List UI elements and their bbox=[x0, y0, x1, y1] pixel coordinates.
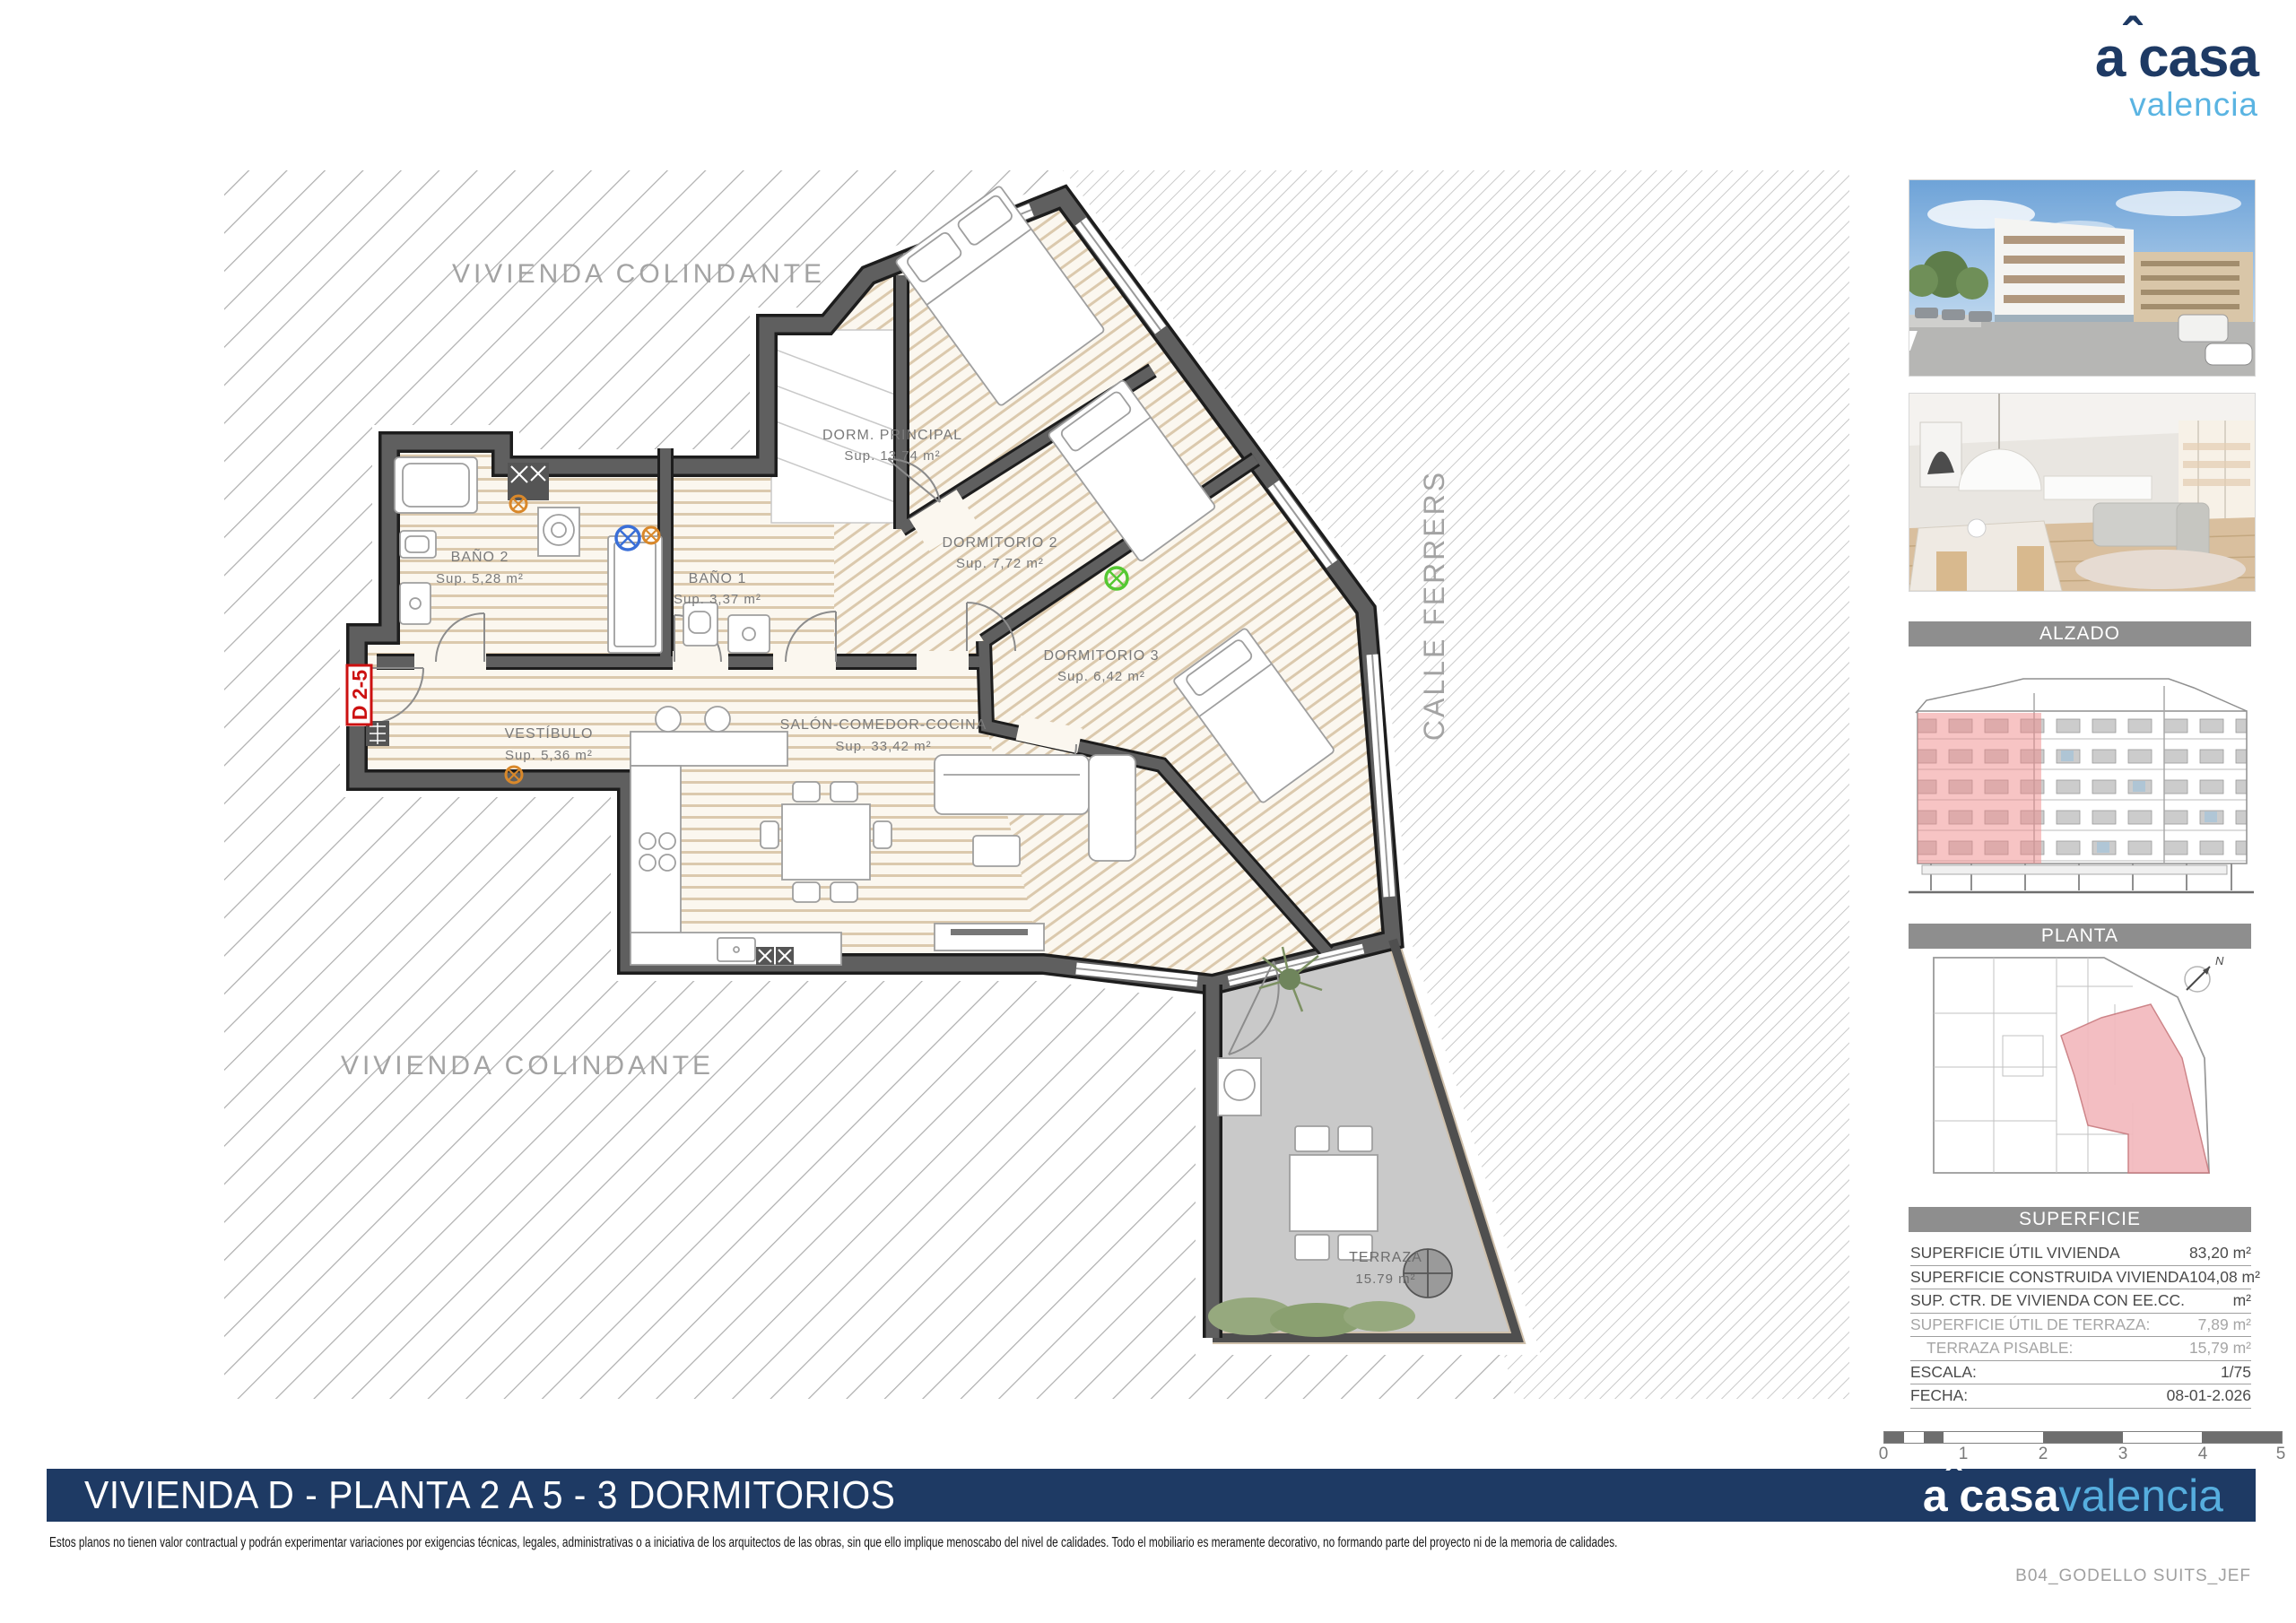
table-row: SUP. CTR. DE VIVIENDA CON EE.CC.m² bbox=[1910, 1289, 2251, 1314]
section-header-alzado: ALZADO bbox=[1909, 621, 2251, 647]
table-row: ESCALA:1/75 bbox=[1910, 1361, 2251, 1385]
table-row: SUPERFICIE ÚTIL DE TERRAZA:7,89 m² bbox=[1910, 1314, 2251, 1338]
label-street: CALLE FERRERS bbox=[1418, 470, 1450, 741]
brand-logo: aˆcasa valencia bbox=[2095, 30, 2258, 121]
scale-bar bbox=[1883, 1431, 2283, 1444]
svg-text:Sup. 3,37 m²: Sup. 3,37 m² bbox=[674, 592, 761, 607]
elevation-drawing bbox=[1909, 650, 2254, 922]
room-dorm-principal: DORM. PRINCIPAL bbox=[822, 428, 962, 443]
table-row: SUPERFICIE CONSTRUIDA VIVIENDA104,08 m² bbox=[1910, 1266, 2251, 1290]
sheet-title: VIVIENDA D - PLANTA 2 A 5 - 3 DORMITORIO… bbox=[84, 1473, 895, 1518]
elevation-highlight bbox=[1918, 713, 2041, 864]
room-salon: SALÓN-COMEDOR-COCINA bbox=[780, 716, 987, 733]
room-dormitorio-2: DORMITORIO 2 bbox=[942, 535, 1057, 551]
svg-text:Sup. 33,42 m²: Sup. 33,42 m² bbox=[835, 739, 931, 754]
disclaimer-text: Estos planos no tienen valor contractual… bbox=[49, 1535, 1617, 1551]
section-header-planta: PLANTA bbox=[1909, 924, 2251, 949]
scale-bar-labels: 0 1 2 3 4 5 bbox=[1883, 1445, 2283, 1462]
svg-text:Sup. 5,36 m²: Sup. 5,36 m² bbox=[505, 748, 593, 763]
footer-brand-logo: aˆcasavalencia bbox=[1923, 1473, 2223, 1518]
room-vestibulo: VESTÍBULO bbox=[505, 725, 594, 742]
key-plan: N bbox=[1909, 950, 2254, 1200]
section-header-superficie: SUPERFICIE bbox=[1909, 1207, 2251, 1232]
svg-text:Sup. 5,28 m²: Sup. 5,28 m² bbox=[436, 571, 524, 586]
file-reference: B04_GODELLO SUITS_JEF bbox=[2015, 1567, 2251, 1586]
logo-caret-icon: ˆ bbox=[1946, 1456, 1961, 1506]
photo-building-exterior bbox=[1909, 179, 2256, 377]
label-adjacent-bottom: VIVIENDA COLINDANTE bbox=[341, 1051, 714, 1081]
logo-caret-icon: ˆ bbox=[2123, 8, 2141, 70]
brand-sublabel: valencia bbox=[2095, 88, 2258, 121]
photo-interior bbox=[1909, 393, 2256, 592]
svg-text:Sup. 7,72 m²: Sup. 7,72 m² bbox=[956, 556, 1044, 571]
surface-table: SUPERFICIE ÚTIL VIVIENDA83,20 m² SUPERFI… bbox=[1910, 1242, 2251, 1409]
table-row: SUPERFICIE ÚTIL VIVIENDA83,20 m² bbox=[1910, 1242, 2251, 1266]
svg-text:Sup. 6,42 m²: Sup. 6,42 m² bbox=[1057, 669, 1145, 684]
sheet-title-bar: VIVIENDA D - PLANTA 2 A 5 - 3 DORMITORIO… bbox=[47, 1469, 2256, 1522]
table-row: TERRAZA PISABLE:15,79 m² bbox=[1910, 1337, 2251, 1361]
room-dormitorio-3: DORMITORIO 3 bbox=[1043, 648, 1159, 664]
svg-text:N: N bbox=[2215, 954, 2224, 968]
room-bano-1: BAÑO 1 bbox=[689, 568, 747, 586]
room-bano-2: BAÑO 2 bbox=[451, 547, 509, 565]
unit-tag: D 2-5 bbox=[347, 665, 371, 725]
svg-text:Sup. 13,74 m²: Sup. 13,74 m² bbox=[844, 448, 940, 464]
svg-text:15.79 m²: 15.79 m² bbox=[1355, 1271, 1415, 1287]
north-arrow-icon: N bbox=[2185, 954, 2224, 992]
unit-tag-label: D 2-5 bbox=[348, 670, 371, 720]
room-terraza: TERRAZA bbox=[1349, 1250, 1422, 1265]
table-row: FECHA:08-01-2.026 bbox=[1910, 1384, 2251, 1409]
label-adjacent-top: VIVIENDA COLINDANTE bbox=[452, 259, 825, 289]
